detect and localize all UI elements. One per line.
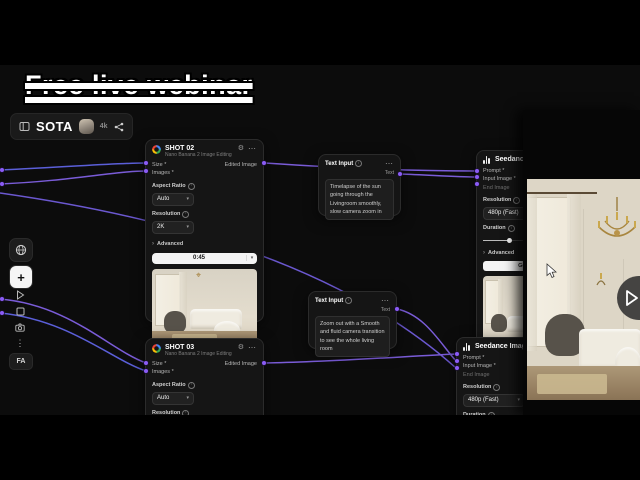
duration-label: Duration: [483, 225, 506, 231]
duration-label: Duration: [463, 412, 486, 415]
more-menu-icon[interactable]: ⋯: [248, 145, 257, 153]
curtain-rod-shape: [527, 192, 597, 194]
settings-icon[interactable]: ⚙: [238, 145, 244, 152]
node-text-input-1[interactable]: Text Input i ⋯ Text Timelapse of the sun…: [318, 154, 401, 216]
input-size-label: Size *: [152, 360, 174, 368]
text-output-label: Text: [325, 170, 394, 176]
info-icon: i: [508, 225, 515, 232]
input-images-label: Images *: [152, 368, 174, 376]
text-input-field[interactable]: Zoom out with a Smooth and fluid camera …: [315, 316, 390, 357]
resolution-select[interactable]: 480p (Fast) ▾: [463, 394, 525, 407]
resolution-value: 480p (Fast): [468, 397, 499, 403]
plus-icon: +: [17, 271, 25, 284]
aspect-ratio-value: Auto: [157, 196, 169, 202]
info-icon: i: [355, 160, 362, 167]
resolution-value: 480p (Fast): [488, 210, 519, 216]
resolution-label: Resolution: [483, 197, 511, 203]
more-tools-button[interactable]: ⋮: [9, 335, 31, 351]
output-edited-image-label: Edited Image: [225, 360, 257, 377]
square-icon: [16, 307, 25, 316]
chevron-right-icon: ›: [152, 241, 154, 247]
chevron-down-icon: ▾: [186, 395, 189, 401]
slider-knob[interactable]: [507, 238, 512, 243]
settings-icon[interactable]: ⚙: [238, 344, 244, 351]
capture-tool-button[interactable]: [9, 319, 31, 335]
chevron-right-icon: ›: [483, 250, 485, 256]
info-icon: i: [182, 211, 189, 218]
info-icon: i: [488, 412, 495, 415]
sidebar-toggle-icon[interactable]: [19, 121, 30, 132]
duration-select[interactable]: 0:45 ▾: [152, 253, 257, 264]
info-icon: i: [182, 410, 189, 416]
chevron-down-icon: ▾: [186, 224, 189, 230]
aspect-ratio-value: Auto: [157, 395, 169, 401]
mouse-cursor: [546, 263, 558, 279]
camera-icon: [15, 323, 25, 332]
info-icon: i: [345, 297, 352, 304]
info-icon: i: [513, 197, 520, 204]
resolution-select[interactable]: 2K ▾: [152, 221, 194, 234]
node-title: SHOT 03: [165, 344, 234, 351]
chevron-down-icon: ▾: [186, 196, 189, 202]
info-icon: i: [493, 384, 500, 391]
duration-value: 0:45: [152, 255, 246, 261]
app-logo-text: SOTA: [36, 119, 73, 134]
input-images-label: Images *: [152, 169, 174, 177]
advanced-toggle[interactable]: › Advanced: [152, 241, 257, 247]
info-icon: i: [188, 382, 195, 389]
node-subtitle: Nano Banana 2 Image Editing: [165, 351, 234, 357]
app-topbar: SOTA 4k: [10, 113, 133, 140]
more-menu-icon[interactable]: ⋯: [385, 160, 394, 168]
resolution-value: 2K: [157, 224, 164, 230]
fa-badge-button[interactable]: FA: [9, 353, 33, 370]
quality-label: 4k: [100, 123, 108, 130]
node-shot03[interactable]: SHOT 03 Nano Banana 2 Image Editing ⚙ ⋯ …: [145, 338, 264, 415]
node-subtitle: Nano Banana 2 Image Editing: [165, 152, 234, 158]
aspect-ratio-label: Aspect Ratio: [152, 382, 186, 388]
info-icon: i: [188, 183, 195, 190]
wall-panel-line: [583, 209, 584, 339]
preview-image[interactable]: ⌖: [152, 269, 257, 349]
globe-icon: [15, 244, 27, 256]
resolution-label: Resolution: [463, 384, 491, 390]
kebab-menu-icon: ⋮: [16, 339, 25, 348]
input-size-label: Size *: [152, 161, 174, 169]
resolution-label: Resolution: [152, 410, 180, 415]
seedance-logo-icon: [463, 343, 471, 351]
aspect-ratio-select[interactable]: Auto ▾: [152, 392, 194, 405]
seedance-logo-icon: [483, 156, 491, 164]
more-menu-icon[interactable]: ⋯: [248, 344, 257, 352]
node-title: Text Input: [315, 298, 343, 304]
screen: Free live webinar SOTA 4k: [0, 0, 640, 480]
web-tool-button[interactable]: [9, 238, 33, 262]
chandelier-shape: ⌖: [196, 271, 201, 280]
add-node-button[interactable]: +: [9, 265, 33, 289]
node-title: SHOT 02: [165, 145, 234, 152]
resolution-label: Resolution: [152, 211, 180, 217]
advanced-label: Advanced: [157, 241, 183, 247]
advanced-label: Advanced: [488, 250, 514, 256]
chevron-down-icon: ▾: [517, 397, 520, 403]
play-icon: [16, 290, 25, 300]
node-shot02[interactable]: SHOT 02 Nano Banana 2 Image Editing ⚙ ⋯ …: [145, 139, 264, 322]
text-input-field[interactable]: Timelapse of the sun going through the L…: [325, 179, 394, 220]
more-menu-icon[interactable]: ⋯: [381, 297, 390, 305]
output-edited-image-label: Edited Image: [225, 161, 257, 178]
nano-banana-logo-icon: [152, 145, 161, 154]
text-output-label: Text: [315, 307, 390, 313]
chandelier-shape: [595, 197, 639, 255]
nano-banana-logo-icon: [152, 344, 161, 353]
video-preview-panel: [523, 110, 640, 415]
frame-tool-button[interactable]: [9, 303, 31, 319]
wall-sconce-shape: [595, 271, 607, 287]
node-canvas[interactable]: SOTA 4k +: [0, 65, 640, 415]
avatar[interactable]: [79, 119, 94, 134]
node-text-input-2[interactable]: Text Input i ⋯ Text Zoom out with a Smoo…: [308, 291, 397, 349]
share-icon[interactable]: [114, 122, 124, 132]
chevron-down-icon: ▾: [246, 255, 257, 261]
play-icon: [624, 289, 640, 307]
aspect-ratio-label: Aspect Ratio: [152, 183, 186, 189]
fa-label: FA: [17, 358, 26, 365]
aspect-ratio-select[interactable]: Auto ▾: [152, 193, 194, 206]
run-button[interactable]: [9, 287, 31, 303]
node-title: Text Input: [325, 161, 353, 167]
webinar-banner: Free live webinar: [25, 70, 253, 101]
